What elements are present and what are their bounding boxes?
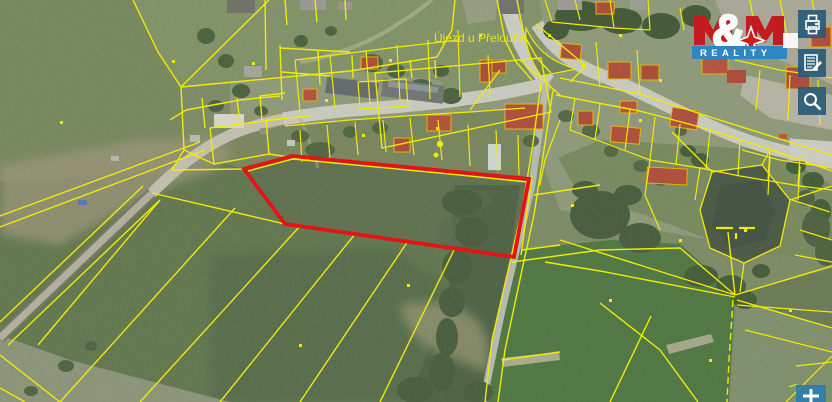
svg-text:Újezd u Přelouče: Újezd u Přelouče <box>434 30 526 45</box>
svg-text:REALITY: REALITY <box>700 48 771 59</box>
